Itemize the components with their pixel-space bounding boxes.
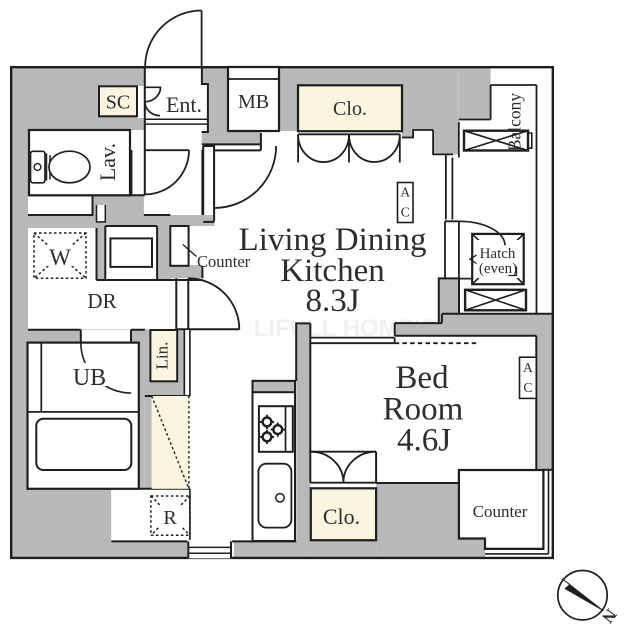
svg-text:Counter: Counter [473, 502, 528, 521]
svg-text:Clo.: Clo. [333, 98, 367, 120]
svg-text:Lin.: Lin. [152, 342, 171, 370]
svg-text:MB: MB [238, 91, 269, 113]
svg-text:W: W [49, 245, 71, 270]
svg-text:C: C [401, 205, 410, 220]
svg-text:A: A [400, 185, 410, 200]
svg-text:Ent.: Ent. [166, 92, 202, 117]
svg-text:Lav.: Lav. [95, 143, 120, 181]
svg-text:4.6J: 4.6J [397, 423, 451, 459]
svg-text:8.3J: 8.3J [305, 283, 359, 319]
svg-text:UB: UB [73, 365, 106, 391]
svg-text:Hatch: Hatch [480, 246, 516, 262]
svg-text:C: C [523, 380, 532, 395]
svg-text:Balcony: Balcony [505, 93, 525, 152]
svg-text:A: A [523, 360, 533, 375]
svg-text:DR: DR [87, 289, 116, 313]
svg-text:(even): (even) [479, 261, 517, 277]
svg-text:Clo.: Clo. [323, 504, 360, 529]
svg-text:SC: SC [106, 92, 130, 114]
svg-text:R: R [163, 507, 177, 529]
